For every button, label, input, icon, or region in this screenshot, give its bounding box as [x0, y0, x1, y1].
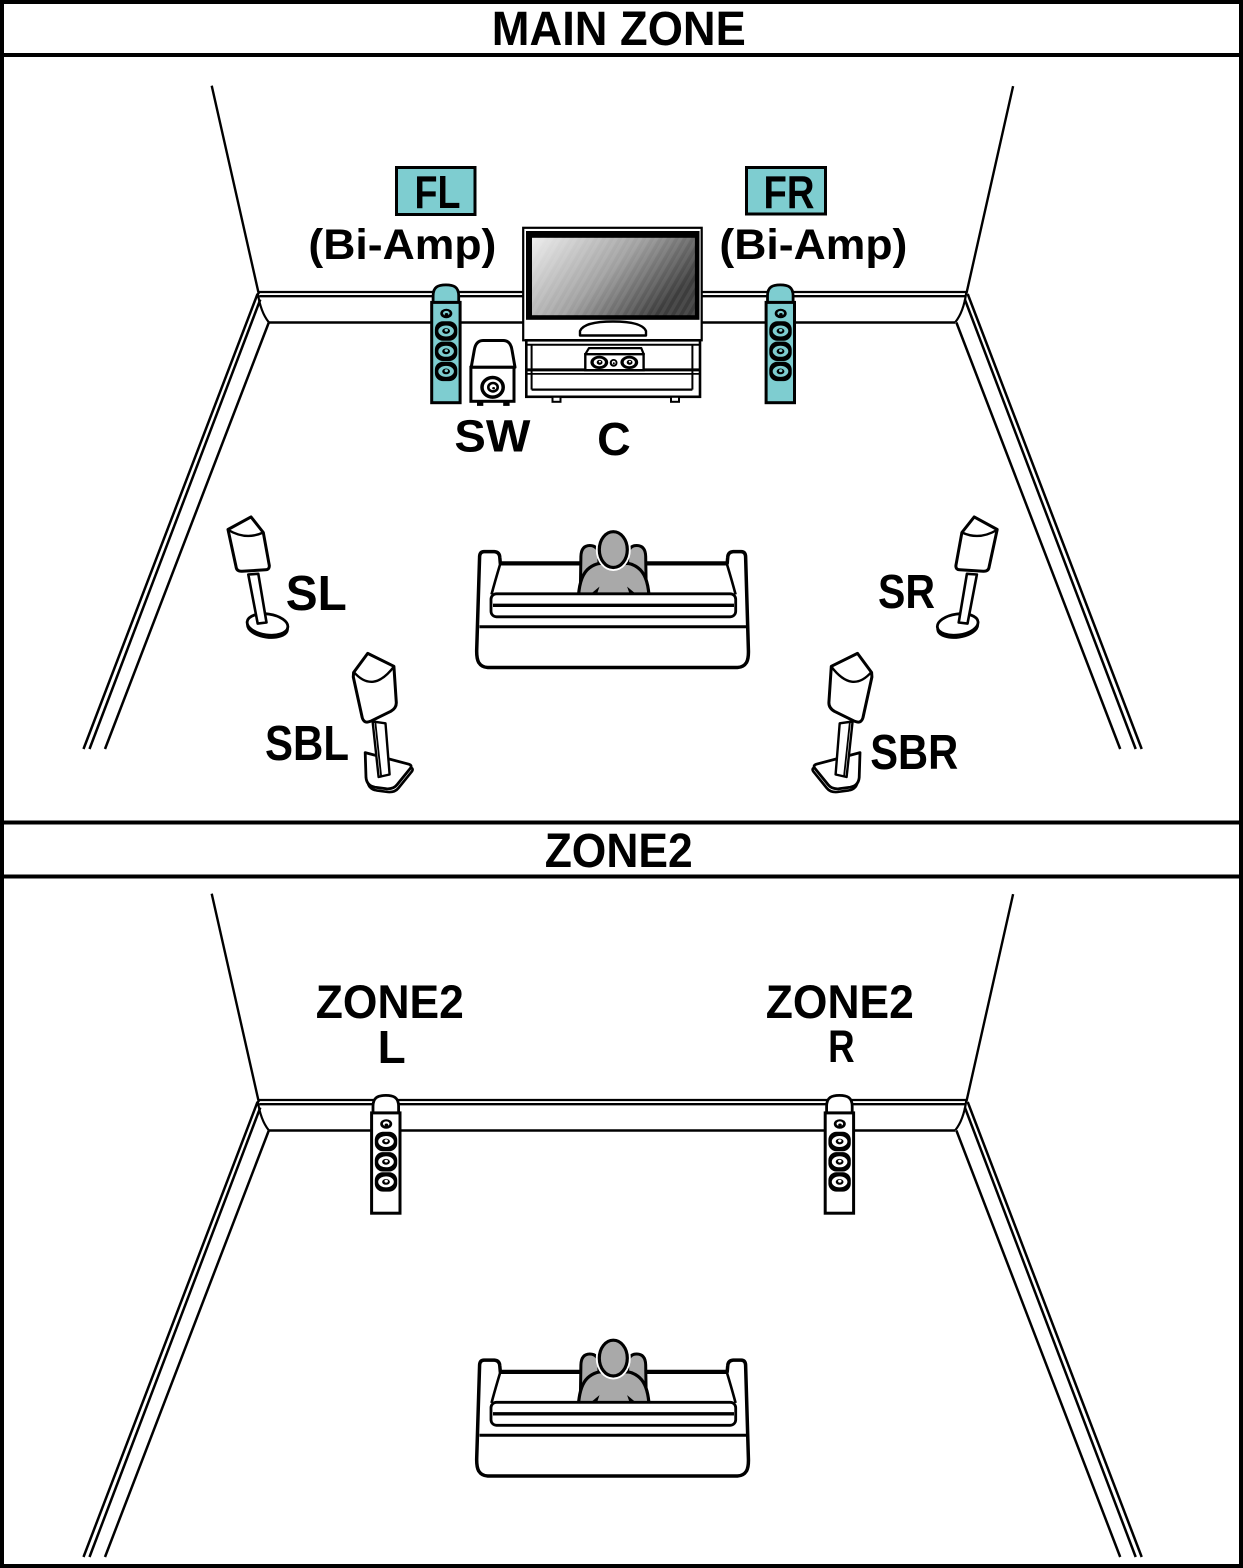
svg-text:C: C — [597, 413, 631, 465]
svg-text:R: R — [828, 1021, 855, 1072]
svg-text:SR: SR — [878, 565, 935, 619]
svg-text:SW: SW — [454, 411, 531, 462]
svg-text:SL: SL — [286, 567, 347, 621]
svg-text:L: L — [378, 1021, 406, 1073]
svg-text:ZONE2: ZONE2 — [545, 825, 693, 878]
svg-text:FL: FL — [415, 166, 461, 218]
svg-text:SBL: SBL — [265, 716, 349, 771]
svg-text:(Bi-Amp): (Bi-Amp) — [719, 221, 907, 269]
svg-text:SBR: SBR — [870, 726, 958, 780]
svg-text:MAIN ZONE: MAIN ZONE — [492, 3, 746, 56]
svg-text:FR: FR — [764, 166, 815, 218]
svg-text:(Bi-Amp): (Bi-Amp) — [308, 221, 496, 269]
